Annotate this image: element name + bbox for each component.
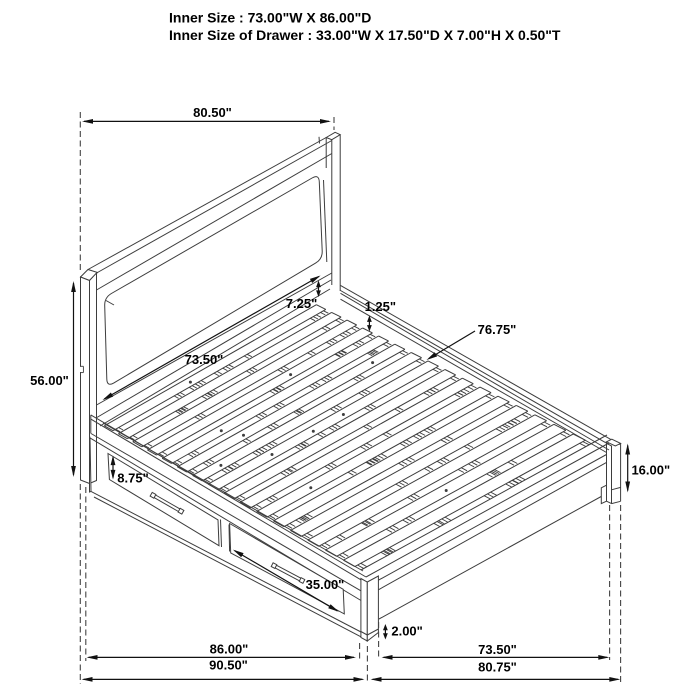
svg-text:90.50": 90.50" xyxy=(209,658,248,673)
svg-text:73.50": 73.50" xyxy=(185,352,224,367)
svg-text:7.25": 7.25" xyxy=(286,296,317,311)
svg-text:1.25": 1.25" xyxy=(365,299,396,314)
svg-text:76.75": 76.75" xyxy=(478,322,517,337)
svg-text:35.00": 35.00" xyxy=(306,577,345,592)
svg-text:2.00": 2.00" xyxy=(391,624,422,639)
svg-text:8.75": 8.75" xyxy=(117,471,148,486)
svg-text:80.50": 80.50" xyxy=(193,105,232,120)
svg-text:56.00": 56.00" xyxy=(30,373,69,388)
svg-text:80.75": 80.75" xyxy=(478,660,517,675)
svg-text:73.50": 73.50" xyxy=(478,642,517,657)
svg-text:Inner Size : 73.00"W X 86.00"D: Inner Size : 73.00"W X 86.00"D xyxy=(169,10,371,26)
svg-text:Inner Size of Drawer : 33.00"W: Inner Size of Drawer : 33.00"W X 17.50"D… xyxy=(169,27,561,43)
svg-text:86.00": 86.00" xyxy=(210,642,249,657)
svg-text:16.00": 16.00" xyxy=(631,463,670,478)
